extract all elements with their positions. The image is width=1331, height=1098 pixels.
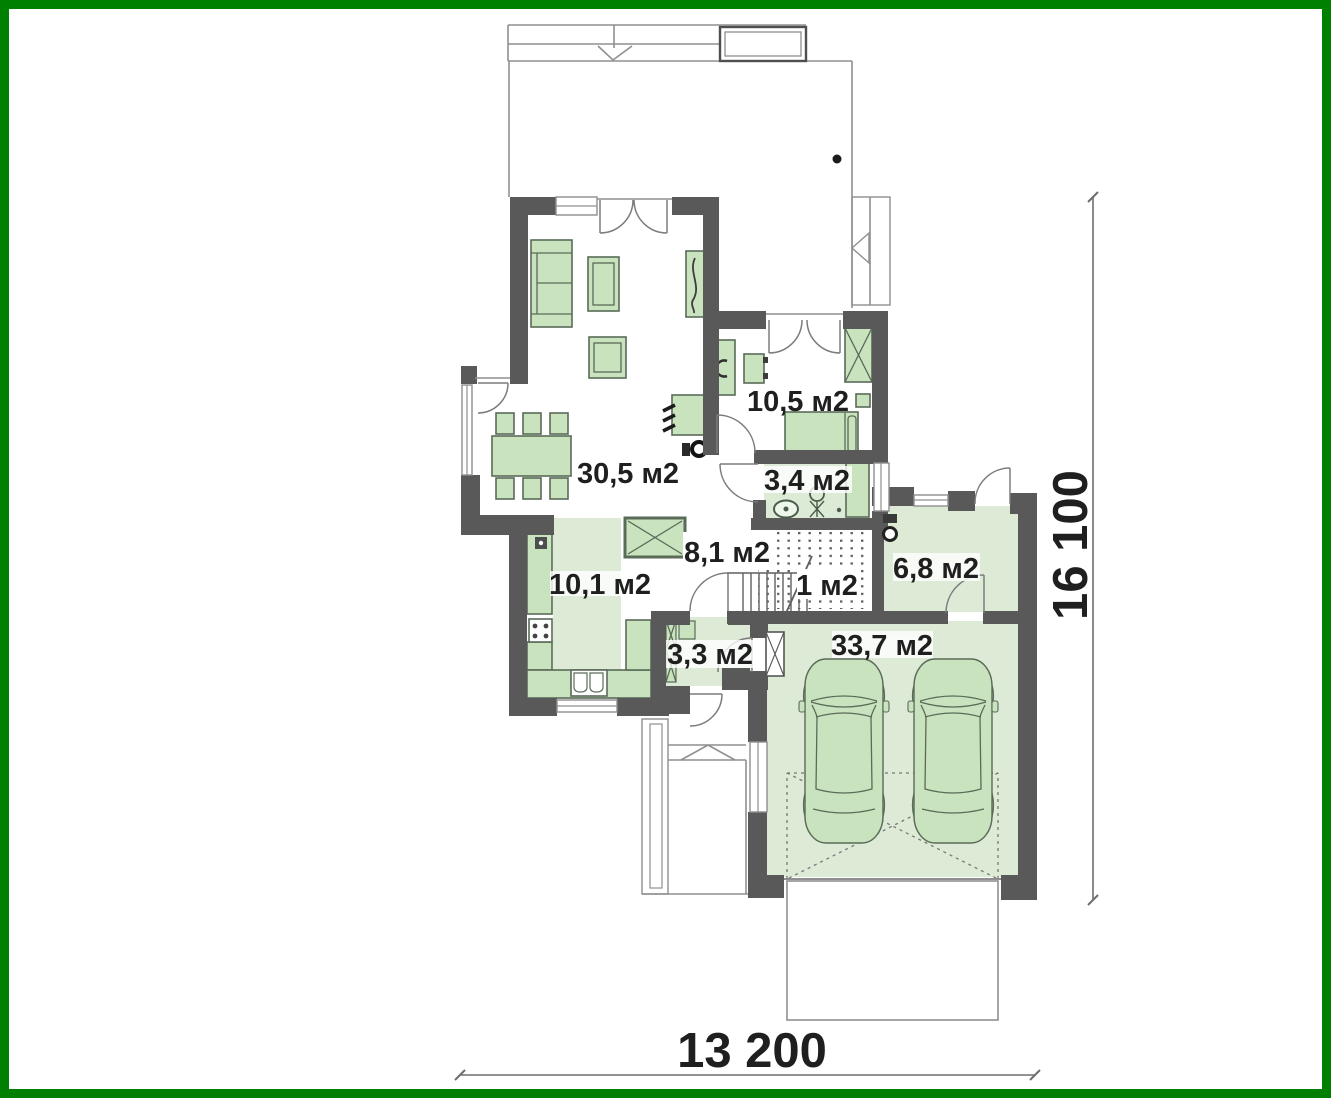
svg-text:1 м2: 1 м2 <box>796 570 858 602</box>
svg-text:13 200: 13 200 <box>677 1024 827 1078</box>
svg-text:16 100: 16 100 <box>1044 470 1098 620</box>
svg-text:33,7 м2: 33,7 м2 <box>831 630 933 662</box>
svg-text:10,5 м2: 10,5 м2 <box>747 386 849 418</box>
svg-text:6,8 м2: 6,8 м2 <box>893 553 979 585</box>
svg-text:30,5 м2: 30,5 м2 <box>577 458 679 490</box>
svg-text:3,4 м2: 3,4 м2 <box>764 465 850 497</box>
svg-text:10,1 м2: 10,1 м2 <box>549 569 651 601</box>
svg-text:3,3 м2: 3,3 м2 <box>667 639 753 671</box>
svg-text:8,1 м2: 8,1 м2 <box>684 537 770 569</box>
